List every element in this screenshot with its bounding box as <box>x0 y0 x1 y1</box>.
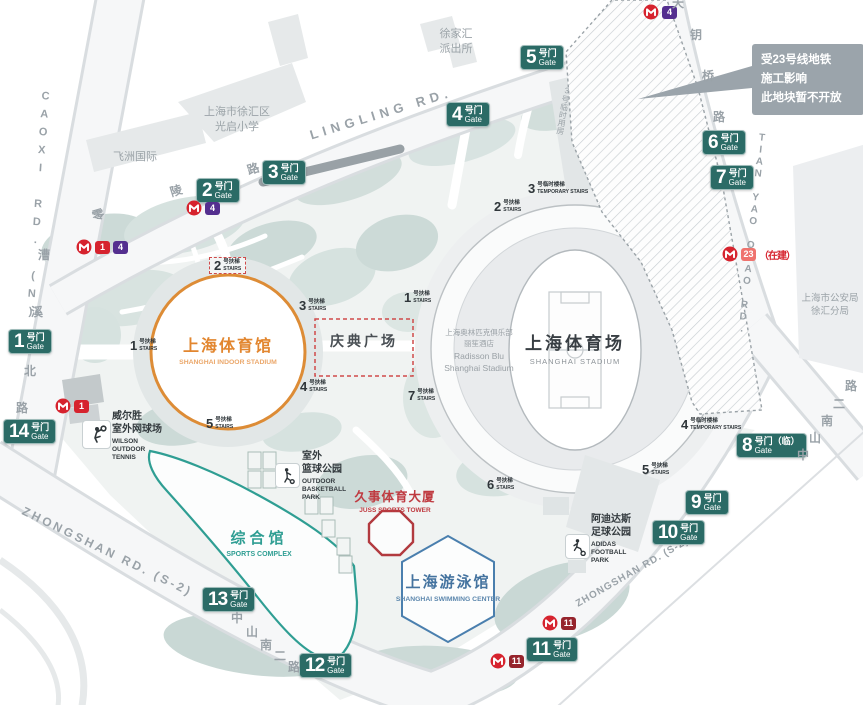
metro-logo-icon <box>722 246 738 262</box>
stairs-5-label: 5号扶梯STAIRS <box>206 417 233 430</box>
metro-logo-icon <box>490 653 506 669</box>
gate-8-chip: 8号门（临）Gate <box>736 433 807 458</box>
road-name-char: 路 <box>16 399 28 416</box>
stairs-4-label: 4号扶梯STAIRS <box>300 380 327 393</box>
metro-marker: 14 <box>76 239 128 255</box>
road-name-char: 漕 <box>38 246 50 263</box>
road-name-char: 路 <box>245 159 261 179</box>
stairs-2-label: 2号扶梯STAIRS <box>494 200 521 213</box>
sports-park-map: 受23号线地铁 施工影响 此地块暂不开放 LINGLING RD. CAOXI … <box>0 0 863 705</box>
road-name-char: 天 <box>672 0 684 11</box>
metro-line-11-badge: 11 <box>509 655 524 668</box>
metro-line-1-badge: 1 <box>74 400 89 413</box>
road-name-char: 桥 <box>702 67 714 84</box>
stairs-1-label: 1号扶梯STAIRS <box>130 339 157 352</box>
sports-complex-label: 综合馆 SPORTS COMPLEX <box>199 527 319 558</box>
psb-label: 上海市公安局 徐汇分局 <box>794 292 863 319</box>
metro-marker: 23（在建） <box>722 246 795 262</box>
stairs-6-label: 6号扶梯STAIRS <box>487 478 514 491</box>
metro-logo-icon <box>76 239 92 255</box>
road-label-zhongshan-west: ZHONGSHAN RD. (S-2) <box>20 504 195 599</box>
gate-11-chip: 11号门Gate <box>526 637 578 662</box>
swimming-center-label: 上海游泳馆 SHANGHAI SWIMMING CENTER <box>378 571 518 603</box>
closed-area-note: 受23号线地铁 施工影响 此地块暂不开放 <box>752 44 863 115</box>
metro-logo-icon <box>643 4 659 20</box>
stairs-5-label: 5号扶梯STAIRS <box>642 463 669 476</box>
gate-5-chip: 5号门Gate <box>520 45 564 70</box>
metro-line-11-badge: 11 <box>561 617 576 630</box>
juss-tower-label: 久事体育大厦 JUSS SPORTS TOWER <box>329 486 461 514</box>
stairs-4-label: 4号临时楼梯TEMPORARY STAIRS <box>681 418 741 431</box>
gate-12-chip: 12号门Gate <box>299 653 352 678</box>
note-line: 受23号线地铁 <box>761 51 855 70</box>
road-name-char: 溪 <box>31 303 43 320</box>
road-name-char: 中 <box>231 609 243 626</box>
gate-6-chip: 6号门Gate <box>702 130 746 155</box>
gate-13-chip: 13号门Gate <box>202 587 255 612</box>
metro-logo-icon <box>55 398 71 414</box>
stairs-3-label: 3号临时楼梯TEMPORARY STAIRS <box>528 182 588 195</box>
road-label-caoxi: CAOXI RD. (N) <box>24 90 52 324</box>
metro-marker: 1 <box>55 398 89 414</box>
tennis-player-icon <box>82 420 111 449</box>
road-name-char: 路 <box>845 377 857 394</box>
metro-logo-icon <box>542 615 558 631</box>
footballer-icon <box>565 534 590 559</box>
metro-marker: 11 <box>490 653 524 669</box>
metro-marker: 11 <box>542 615 576 631</box>
road-name-char: 二 <box>274 647 286 664</box>
metro-line-4-badge: 4 <box>205 202 220 215</box>
road-name-char: 南 <box>260 636 272 653</box>
road-name-char: 二 <box>833 395 845 412</box>
road-name-char: 南 <box>821 412 833 429</box>
stairs-2-label: 2号扶梯STAIRS <box>209 257 246 274</box>
road-name-char: 中 <box>797 446 809 463</box>
metro-logo-icon <box>186 200 202 216</box>
stairs-3-label: 3号扶梯STAIRS <box>299 299 326 312</box>
celebration-square-label: 庆典广场 <box>315 331 413 351</box>
school-label: 上海市徐汇区 光启小学 <box>183 105 291 136</box>
road-name-char: 北 <box>24 362 36 379</box>
road-name-char: 路 <box>288 658 300 675</box>
gate-3-chip: 3号门Gate <box>262 160 306 185</box>
metro-marker: 4 <box>186 200 220 216</box>
under-construction-note: （在建） <box>759 247 795 262</box>
gate-7-chip: 7号门Gate <box>710 165 754 190</box>
metro-line-4-badge: 4 <box>113 241 128 254</box>
feizhou-label: 飞洲国际 <box>103 150 167 165</box>
police-station-label: 徐家汇 派出所 <box>423 27 489 58</box>
indoor-stadium-label: 上海体育馆 SHANGHAI INDOOR STADIUM <box>148 332 308 366</box>
road-name-char: 陵 <box>168 181 184 201</box>
road-label-tianyao: TIAN YAO QIAO RD. <box>736 132 768 336</box>
gate-14-chip: 14号门Gate <box>3 419 56 444</box>
temp-building-label: 3号临时用房 <box>554 85 573 135</box>
stairs-1-label: 1号扶梯STAIRS <box>404 291 431 304</box>
note-line: 此地块暂不开放 <box>761 89 855 108</box>
road-name-char: 钥 <box>690 26 702 43</box>
radisson-label: 上海奥林匹克俱乐部 丽笙酒店 Radisson Blu Shanghai Sta… <box>432 327 526 375</box>
road-label-lingling: LINGLING RD. <box>308 85 454 143</box>
basketball-park-label: 室外 篮球公园 OUTDOOR BASKETBALL PARK <box>302 451 346 502</box>
road-name-char: 山 <box>246 623 258 640</box>
metro-line-1-badge: 1 <box>95 241 110 254</box>
note-line: 施工影响 <box>761 70 855 89</box>
gate-1-chip: 1号门Gate <box>8 329 52 354</box>
gate-10-chip: 10号门Gate <box>652 520 705 545</box>
gate-4-chip: 4号门Gate <box>446 102 490 127</box>
stairs-7-label: 7号扶梯STAIRS <box>408 389 435 402</box>
metro-line-23-badge: 23 <box>741 248 756 261</box>
adidas-park-label: 阿迪达斯 足球公园 ADIDAS FOOTBALL PARK <box>591 514 631 565</box>
road-name-char: 路 <box>713 108 725 125</box>
wilson-tennis-label: 威尔胜 室外网球场 WILSON OUTDOOR TENNIS <box>112 411 162 462</box>
gate-9-chip: 9号门Gate <box>685 490 729 515</box>
road-name-char: 零 <box>90 205 106 225</box>
basketball-player-icon <box>275 463 300 488</box>
road-name-char: 山 <box>809 429 821 446</box>
